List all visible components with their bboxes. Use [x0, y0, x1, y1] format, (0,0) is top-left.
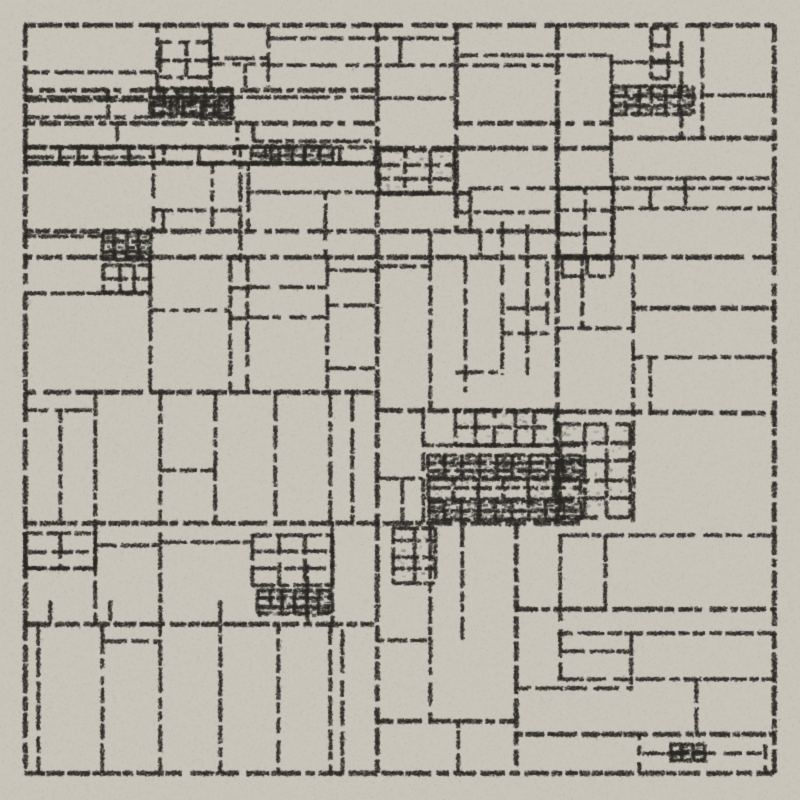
- subdivision-art-canvas: [0, 0, 800, 800]
- generative-artwork: [0, 0, 800, 800]
